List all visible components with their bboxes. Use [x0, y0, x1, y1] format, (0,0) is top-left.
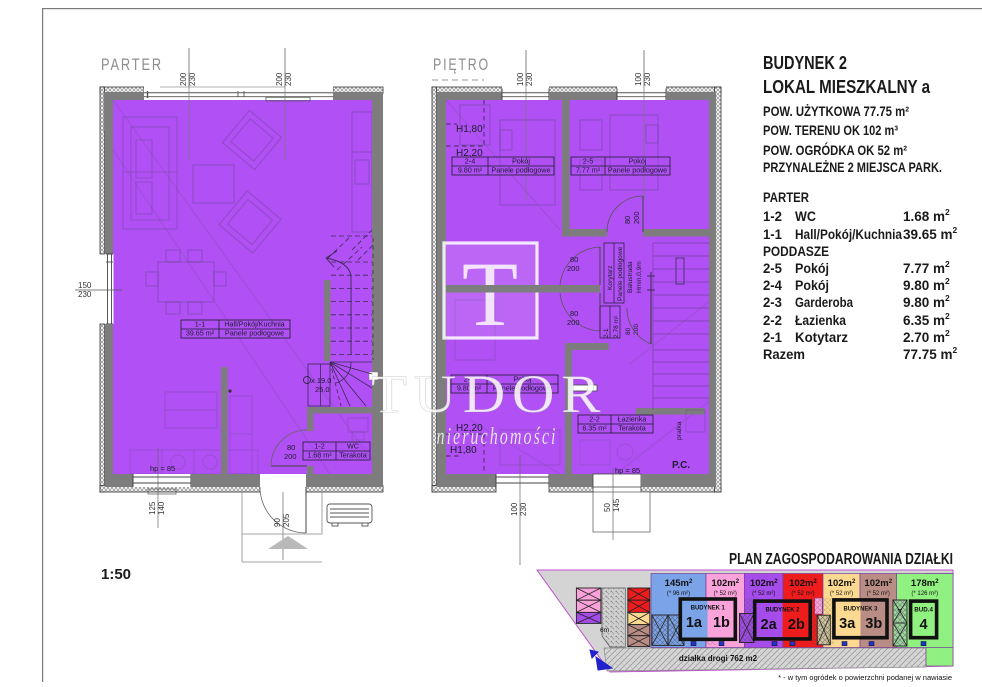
svg-text:Garderoba: Garderoba	[795, 295, 853, 310]
svg-text:1.68 m²: 1.68 m²	[307, 450, 332, 459]
svg-text:102m2: 102m2	[864, 578, 892, 589]
svg-text:Panele podłogowe: Panele podłogowe	[225, 328, 284, 337]
svg-text:125: 125	[148, 501, 157, 515]
svg-text:100: 100	[634, 72, 643, 86]
svg-text:(* 52 m²): (* 52 m²)	[830, 591, 853, 597]
svg-text:230: 230	[188, 72, 197, 86]
svg-text:102m2: 102m2	[750, 578, 778, 589]
svg-text:2.70 m2: 2.70 m2	[903, 328, 950, 345]
svg-text:PARTER: PARTER	[101, 55, 163, 74]
svg-text:2-1: 2-1	[603, 328, 610, 338]
svg-text:2.78 m²: 2.78 m²	[613, 315, 620, 338]
svg-text:1-1: 1-1	[195, 319, 205, 328]
svg-text:2a: 2a	[761, 617, 778, 633]
svg-text:2-4: 2-4	[763, 278, 782, 293]
svg-text:działka drogi 762 m2: działka drogi 762 m2	[679, 654, 758, 663]
svg-text:Kotytarz: Kotytarz	[795, 330, 848, 345]
svg-text:nieruchomości: nieruchomości	[437, 424, 558, 450]
svg-text:200: 200	[275, 72, 284, 86]
svg-text:2-5: 2-5	[583, 156, 593, 165]
svg-text:80: 80	[287, 443, 295, 452]
svg-text:WC: WC	[347, 441, 359, 450]
svg-text:4: 4	[920, 617, 928, 633]
svg-text:POW. OGRÓDKA OK 52 m²: POW. OGRÓDKA OK 52 m²	[763, 141, 907, 158]
svg-text:BUDYNEK 1: BUDYNEK 1	[691, 605, 725, 612]
svg-text:25.0: 25.0	[315, 385, 330, 394]
svg-text:Panele podłogowe: Panele podłogowe	[617, 246, 624, 301]
svg-text:P.C.: P.C.	[672, 460, 690, 471]
svg-text:39.65 m2: 39.65 m2	[903, 225, 958, 242]
svg-text:145: 145	[612, 498, 621, 512]
svg-text:Terakota: Terakota	[339, 450, 367, 459]
svg-text:2-4: 2-4	[465, 156, 475, 165]
svg-text:230: 230	[519, 502, 528, 516]
svg-text:T: T	[462, 243, 518, 345]
svg-text:Pokój: Pokój	[795, 278, 829, 293]
svg-text:1.68 m2: 1.68 m2	[903, 207, 950, 224]
svg-text:Łazienka: Łazienka	[618, 414, 647, 423]
svg-text:2-5: 2-5	[763, 261, 782, 276]
svg-text:Terakota: Terakota	[618, 423, 646, 432]
svg-text:102m2: 102m2	[828, 578, 856, 589]
svg-text:200: 200	[567, 264, 580, 273]
svg-text:H1,80: H1,80	[456, 124, 483, 135]
svg-text:Balustrada: Balustrada	[627, 261, 634, 293]
svg-text:80: 80	[570, 309, 578, 318]
svg-text:PODDASZE: PODDASZE	[763, 244, 829, 259]
svg-text:Panele podłogowe: Panele podłogowe	[491, 165, 550, 174]
svg-text:POW. UŻYTKOWA 77.75 m²: POW. UŻYTKOWA 77.75 m²	[763, 103, 909, 119]
svg-text:1-1: 1-1	[763, 227, 782, 242]
svg-text:100: 100	[516, 72, 525, 86]
svg-text:1a: 1a	[686, 615, 703, 631]
svg-text:2-2: 2-2	[763, 313, 782, 328]
svg-text:1:50: 1:50	[101, 566, 131, 583]
svg-text:Hall/Pokój/Kuchnia: Hall/Pokój/Kuchnia	[795, 227, 902, 242]
svg-text:PRZYNALEŻNE 2 MIEJSCA PARK.: PRZYNALEŻNE 2 MIEJSCA PARK.	[763, 159, 942, 175]
svg-text:9.80 m²: 9.80 m²	[458, 165, 483, 174]
svg-text:Pokój: Pokój	[629, 156, 647, 165]
svg-text:200: 200	[567, 318, 580, 327]
svg-text:(* 52 m²): (* 52 m²)	[791, 591, 814, 597]
svg-text:9.80 m2: 9.80 m2	[903, 293, 950, 310]
svg-text:7.77 m2: 7.77 m2	[903, 259, 950, 276]
svg-text:1-2: 1-2	[763, 209, 782, 224]
svg-text:BUDYNEK 3: BUDYNEK 3	[843, 605, 877, 612]
svg-text:(* 52 m²): (* 52 m²)	[867, 591, 890, 597]
svg-text:150: 150	[78, 281, 92, 290]
svg-text:140: 140	[157, 501, 166, 515]
svg-text:Hall/Pokój/Kuchnia: Hall/Pokój/Kuchnia	[224, 319, 284, 328]
svg-text:100: 100	[510, 502, 519, 516]
svg-text:TUDOR: TUDOR	[371, 364, 607, 424]
svg-text:145m2: 145m2	[665, 578, 693, 589]
svg-text:Korytarz: Korytarz	[607, 265, 614, 290]
svg-text:39.65 m²: 39.65 m²	[186, 328, 215, 337]
svg-text:178m2: 178m2	[911, 578, 939, 589]
svg-text:102m2: 102m2	[789, 578, 817, 589]
svg-text:9.80 m2: 9.80 m2	[903, 276, 950, 293]
svg-text:Razem: Razem	[763, 347, 805, 362]
svg-text:Panele podłogowe: Panele podłogowe	[608, 165, 667, 174]
svg-text:3b: 3b	[865, 616, 882, 632]
svg-text:pralka: pralka	[676, 421, 683, 440]
svg-text:(* 126 m²): (* 126 m²)	[911, 591, 938, 597]
svg-text:7.77 m²: 7.77 m²	[576, 165, 601, 174]
svg-text:205: 205	[282, 513, 291, 527]
svg-text:BUDYNEK 2: BUDYNEK 2	[763, 53, 847, 73]
svg-text:x 19.0: x 19.0	[311, 376, 331, 385]
svg-text:Hmin,0,9m: Hmin,0,9m	[636, 261, 643, 293]
svg-text:PLAN ZAGOSPODAROWANIA DZIAŁKI: PLAN ZAGOSPODAROWANIA DZIAŁKI	[729, 551, 953, 568]
svg-text:3a: 3a	[839, 616, 856, 632]
svg-text:80: 80	[623, 216, 632, 224]
svg-text:90: 90	[273, 518, 282, 527]
svg-text:Łazienka: Łazienka	[795, 313, 846, 328]
svg-text:102m2: 102m2	[711, 578, 739, 589]
svg-text:80: 80	[570, 255, 578, 264]
svg-text:2-3: 2-3	[763, 295, 782, 310]
svg-text:6.35 m2: 6.35 m2	[903, 311, 950, 328]
svg-text:200: 200	[284, 452, 297, 461]
svg-text:(* 52 m²): (* 52 m²)	[714, 591, 737, 597]
svg-text:POW. TERENU OK 102 m³: POW. TERENU OK 102 m³	[763, 122, 898, 138]
svg-text:230: 230	[78, 290, 92, 299]
svg-text:BUDYNEK 2: BUDYNEK 2	[765, 607, 799, 614]
svg-text:WC: WC	[795, 209, 816, 224]
svg-text:BUD.4: BUD.4	[914, 607, 933, 614]
svg-text:hp = 85: hp = 85	[615, 466, 640, 475]
svg-text:77.75 m2: 77.75 m2	[903, 345, 958, 362]
svg-text:2-1: 2-1	[763, 330, 782, 345]
svg-text:6.35 m²: 6.35 m²	[582, 423, 607, 432]
svg-text:Pokój: Pokój	[795, 261, 829, 276]
svg-text:PARTER: PARTER	[763, 190, 809, 205]
svg-text:* - w tym ogródek o powierzchn: * - w tym ogródek o powierzchni podanej …	[778, 673, 952, 682]
svg-text:50: 50	[603, 503, 612, 512]
svg-text:2b: 2b	[788, 617, 805, 633]
svg-text:LOKAL MIESZKALNY a: LOKAL MIESZKALNY a	[763, 77, 931, 97]
svg-text:hp = 85: hp = 85	[150, 464, 175, 473]
svg-text:1b: 1b	[713, 615, 730, 631]
svg-text:6m: 6m	[600, 627, 609, 634]
svg-text:PIĘTRO: PIĘTRO	[433, 55, 490, 74]
svg-text:200: 200	[632, 211, 641, 224]
svg-text:Pokój: Pokój	[512, 156, 530, 165]
svg-text:(* 52 m²): (* 52 m²)	[752, 591, 775, 597]
svg-text:200: 200	[179, 72, 188, 86]
svg-text:80: 80	[625, 327, 632, 335]
svg-text:1-2: 1-2	[314, 441, 324, 450]
svg-text:(* 96 m²): (* 96 m²)	[667, 591, 690, 597]
